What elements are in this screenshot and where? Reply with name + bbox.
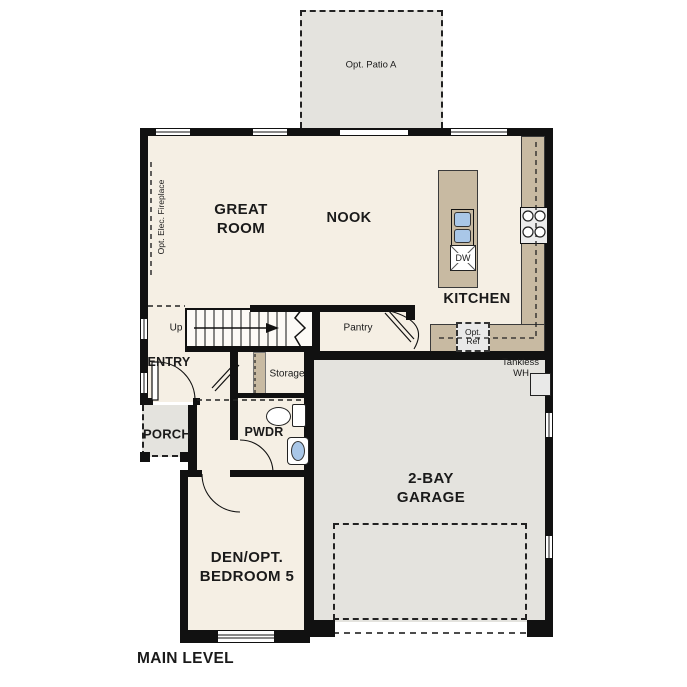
tankless-wh-label: Tankless WH (475, 357, 539, 379)
garage-left-wall (304, 352, 314, 637)
den-label: DEN/OPT. BEDROOM 5 (200, 548, 294, 586)
optional-refrigerator: Opt. Ref (456, 322, 490, 352)
pwdr-sink-basin (291, 441, 305, 461)
garage-door-opening (335, 622, 527, 635)
window-left-1 (140, 318, 148, 340)
window-garage-1 (545, 412, 553, 438)
closet-left-stub (230, 470, 240, 477)
stairs-bottom-wall (185, 346, 313, 352)
entry-label: ENTRY (148, 355, 191, 369)
den-label-line2: BEDROOM 5 (200, 567, 294, 586)
garage-bottom-right (527, 620, 553, 637)
stairs-top-wall (250, 305, 318, 312)
den-bottom-wall-right (275, 630, 310, 643)
plan-title: MAIN LEVEL (137, 650, 234, 668)
patio-label: Opt. Patio A (346, 60, 397, 71)
up-label: Up (170, 323, 183, 334)
tankless-label-line1: Tankless (475, 357, 539, 368)
storage-label: Storage (269, 369, 304, 380)
fireplace-label: Opt. Elec. Fireplace (156, 180, 166, 255)
patio-sliding-door (340, 128, 408, 136)
den-bottom-wall-left (180, 630, 217, 643)
window-top-1 (155, 128, 191, 136)
opt-ref-label-2: Ref (466, 337, 479, 346)
pantry-left-wall (312, 305, 320, 352)
toilet-bowl (266, 407, 291, 426)
porch-top-wall-right (193, 398, 200, 405)
garage-door-swing-area (333, 523, 527, 620)
den-label-line1: DEN/OPT. (200, 548, 294, 567)
floor-plan: DW Opt. Ref (0, 0, 687, 687)
storage-bottom-wall (238, 393, 304, 398)
window-garage-2 (545, 535, 553, 559)
great-room-label-line1: GREAT (214, 200, 267, 219)
dishwasher-label: DW (455, 253, 472, 263)
understair-partition (253, 352, 266, 397)
pantry-corner-stub (406, 305, 415, 320)
kitchen-label: KITCHEN (443, 290, 510, 308)
toilet-tank (292, 404, 306, 427)
pwdr-label: PWDR (245, 425, 284, 439)
nook-label: NOOK (326, 209, 371, 227)
porch-label: PORCH (143, 427, 191, 442)
porch-top-wall-left (140, 398, 153, 405)
closet-left-wall (230, 352, 238, 440)
pantry-top-wall (312, 305, 413, 312)
garage-label-line1: 2-BAY (397, 469, 465, 488)
den-left-wall (180, 470, 188, 643)
window-den (217, 630, 275, 643)
island-sink-basin-top (454, 212, 471, 227)
dishwasher: DW (450, 245, 476, 271)
great-room-label-line2: ROOM (214, 219, 267, 238)
porch-corner-left (140, 452, 150, 462)
great-room-label: GREAT ROOM (214, 200, 267, 238)
pantry-label: Pantry (344, 323, 373, 334)
stove (520, 207, 548, 244)
garage-label: 2-BAY GARAGE (397, 469, 465, 507)
staircase (185, 308, 312, 350)
garage-label-line2: GARAGE (397, 488, 465, 507)
den-top-wall-right (240, 470, 304, 477)
window-left-2 (140, 372, 148, 394)
window-top-3 (450, 128, 508, 136)
tankless-label-line2: WH (475, 368, 539, 379)
island-sink-basin-bottom (454, 229, 471, 243)
porch-corner-right (180, 452, 197, 462)
window-top-2 (252, 128, 288, 136)
